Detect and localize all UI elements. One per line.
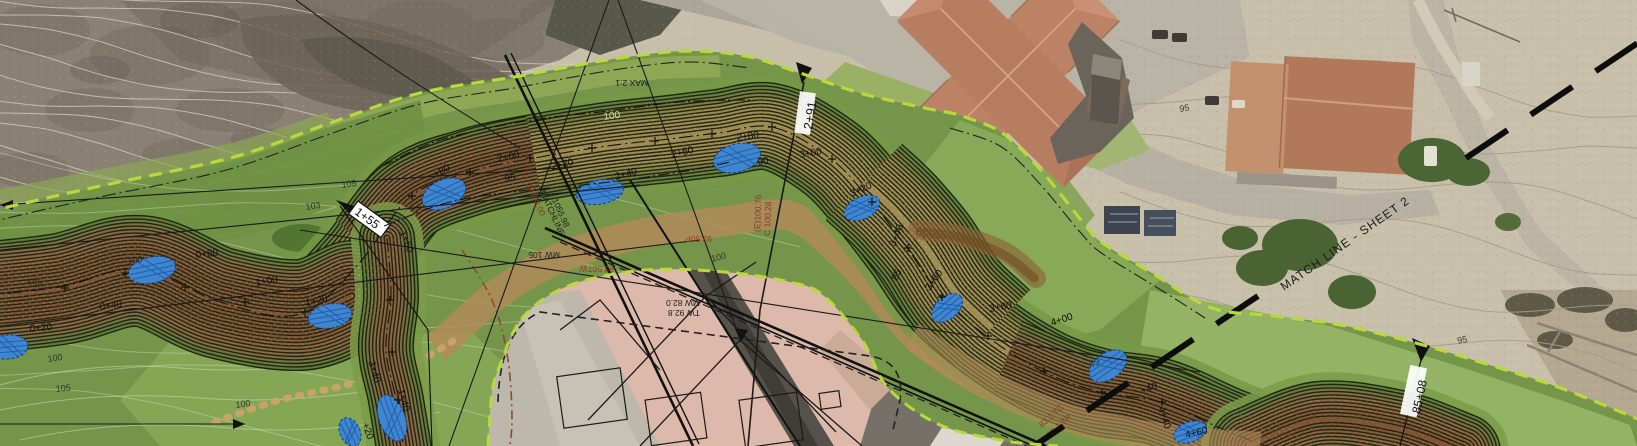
svg-text:103: 103 bbox=[305, 200, 321, 212]
svg-text:MW 105: MW 105 bbox=[528, 250, 560, 260]
svg-text:95: 95 bbox=[1179, 102, 1191, 114]
svg-text:105: 105 bbox=[55, 382, 71, 394]
svg-text:100: 100 bbox=[235, 398, 251, 410]
svg-text:92.50P: 92.50P bbox=[685, 234, 712, 244]
svg-text:95: 95 bbox=[1456, 334, 1468, 346]
svg-text:MW 82.0: MW 82.0 bbox=[666, 298, 700, 308]
svg-text:95: 95 bbox=[504, 172, 517, 185]
svg-text:83.50TW: 83.50TW bbox=[580, 264, 615, 274]
svg-text:90: 90 bbox=[757, 155, 770, 168]
svg-text:105: 105 bbox=[341, 178, 357, 190]
svg-text:MAX 2:1: MAX 2:1 bbox=[615, 78, 648, 88]
svg-text:100: 100 bbox=[47, 352, 63, 364]
svg-text:TW 92.8: TW 92.8 bbox=[668, 308, 700, 318]
svg-text:100: 100 bbox=[127, 254, 143, 266]
svg-text:C 100.28: C 100.28 bbox=[762, 201, 773, 236]
